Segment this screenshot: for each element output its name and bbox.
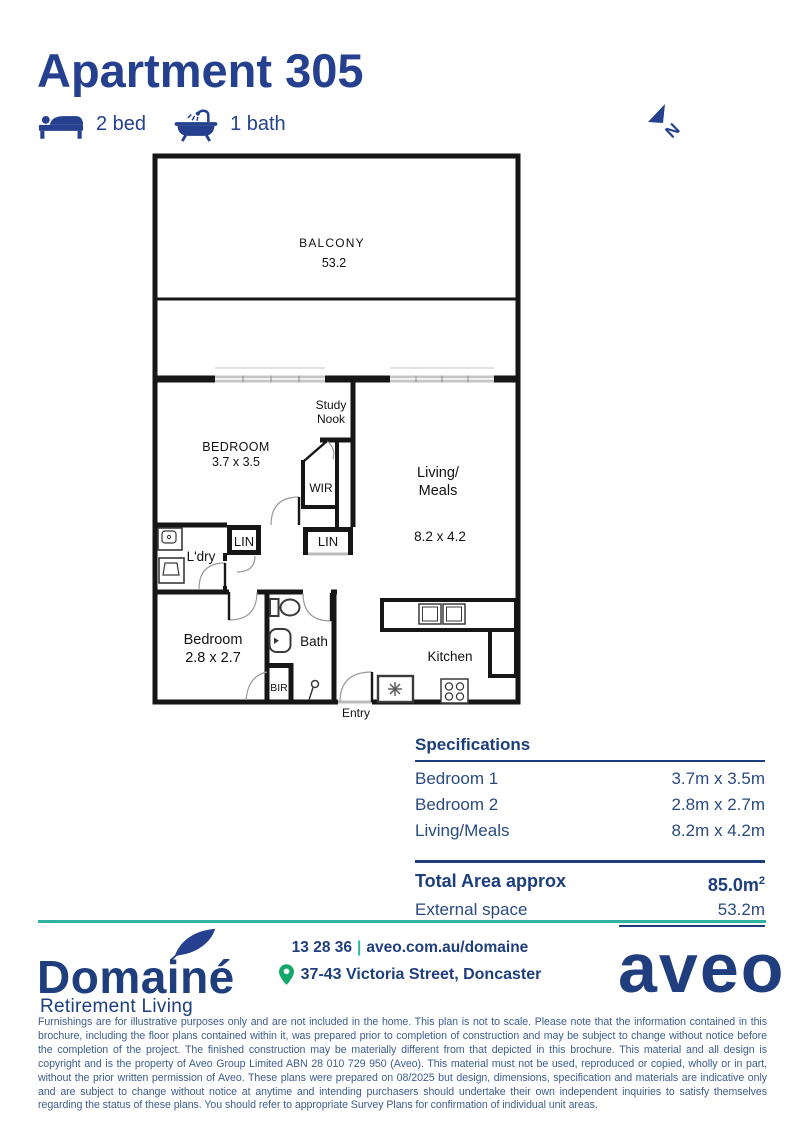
window-wall (153, 368, 520, 383)
bath-icon (174, 106, 218, 142)
total-area-value: 85.0m2 (708, 870, 765, 896)
separator: | (352, 939, 366, 956)
location-pin-icon (279, 964, 294, 985)
bedroom2-dims: 2.8 x 2.7 (185, 650, 241, 666)
aveo-logo: aveo (618, 933, 786, 1003)
spec-label: Living/Meals (415, 818, 510, 844)
page-title: Apartment 305 (37, 46, 364, 96)
specifications-heading: Specifications (415, 735, 765, 762)
spec-row-bedroom2: Bedroom 2 2.8m x 2.7m (415, 792, 765, 818)
external-space-label: External space (415, 898, 527, 922)
domaine-logo: Domainé (37, 953, 235, 1001)
study-nook-label-1: Study (316, 398, 347, 412)
contact-phone-web: 13 28 36|aveo.com.au/domaine (245, 939, 575, 957)
feature-row: 2 bed 1 bath (38, 104, 286, 144)
brochure-page: Apartment 305 2 bed 1 bath N (0, 0, 800, 1131)
spec-value: 8.2m x 4.2m (671, 818, 765, 844)
living-label-2: Meals (419, 483, 458, 499)
study-nook-label-2: Nook (317, 412, 346, 426)
bedroom2-label: Bedroom (184, 632, 243, 648)
contact-block: 13 28 36|aveo.com.au/domaine 37-43 Victo… (245, 939, 575, 985)
lin1-label: LIN (234, 534, 254, 549)
bath-label: Bath (300, 634, 328, 649)
disclaimer-text: Furnishings are for illustrative purpose… (38, 1016, 767, 1113)
bath-count-label: 1 bath (230, 113, 286, 136)
contact-address-row: 37-43 Victoria Street, Doncaster (245, 964, 575, 985)
total-area-row: Total Area approx 85.0m2 (415, 863, 765, 896)
total-area-label: Total Area approx (415, 870, 566, 896)
kitchen-label: Kitchen (427, 649, 472, 664)
balcony-label: BALCONY (299, 236, 365, 250)
spec-row-living: Living/Meals 8.2m x 4.2m (415, 818, 765, 844)
spec-label: Bedroom 1 (415, 766, 498, 792)
address: 37-43 Victoria Street, Doncaster (301, 966, 542, 984)
floor-plan: BALCONY 53.2 BEDROOM 3.7 x 3.5 Study Noo… (150, 148, 528, 730)
specifications-table: Specifications Bedroom 1 3.7m x 3.5m Bed… (415, 735, 765, 927)
spec-value: 3.7m x 3.5m (671, 766, 765, 792)
external-value-underline (619, 925, 765, 927)
phone-number: 13 28 36 (292, 939, 352, 956)
lin2-label: LIN (318, 534, 338, 549)
domaine-tagline: Retirement Living (40, 996, 193, 1018)
room-labels: BALCONY 53.2 BEDROOM 3.7 x 3.5 Study Noo… (184, 236, 473, 720)
external-space-value: 53.2m (718, 898, 765, 922)
website: aveo.com.au/domaine (366, 939, 528, 956)
bed-icon (38, 108, 84, 140)
bedroom1-label: BEDROOM (202, 440, 269, 454)
wir-label: WIR (309, 481, 333, 495)
spec-value: 2.8m x 2.7m (671, 792, 765, 818)
entry-label: Entry (342, 706, 370, 720)
north-label: N (662, 119, 684, 141)
living-label-1: Living/ (417, 465, 460, 481)
spec-row-bedroom1: Bedroom 1 3.7m x 3.5m (415, 766, 765, 792)
balcony-area: 53.2 (322, 256, 346, 270)
external-space-row: External space 53.2m (415, 896, 765, 922)
north-arrow: N (642, 98, 690, 146)
ldry-label: L'dry (187, 549, 216, 564)
bir-label: BIR (270, 682, 288, 694)
spec-label: Bedroom 2 (415, 792, 498, 818)
bed-count-label: 2 bed (96, 113, 146, 136)
bedroom1-dims: 3.7 x 3.5 (212, 455, 260, 469)
living-dims: 8.2 x 4.2 (414, 529, 466, 544)
teal-divider (38, 920, 766, 923)
